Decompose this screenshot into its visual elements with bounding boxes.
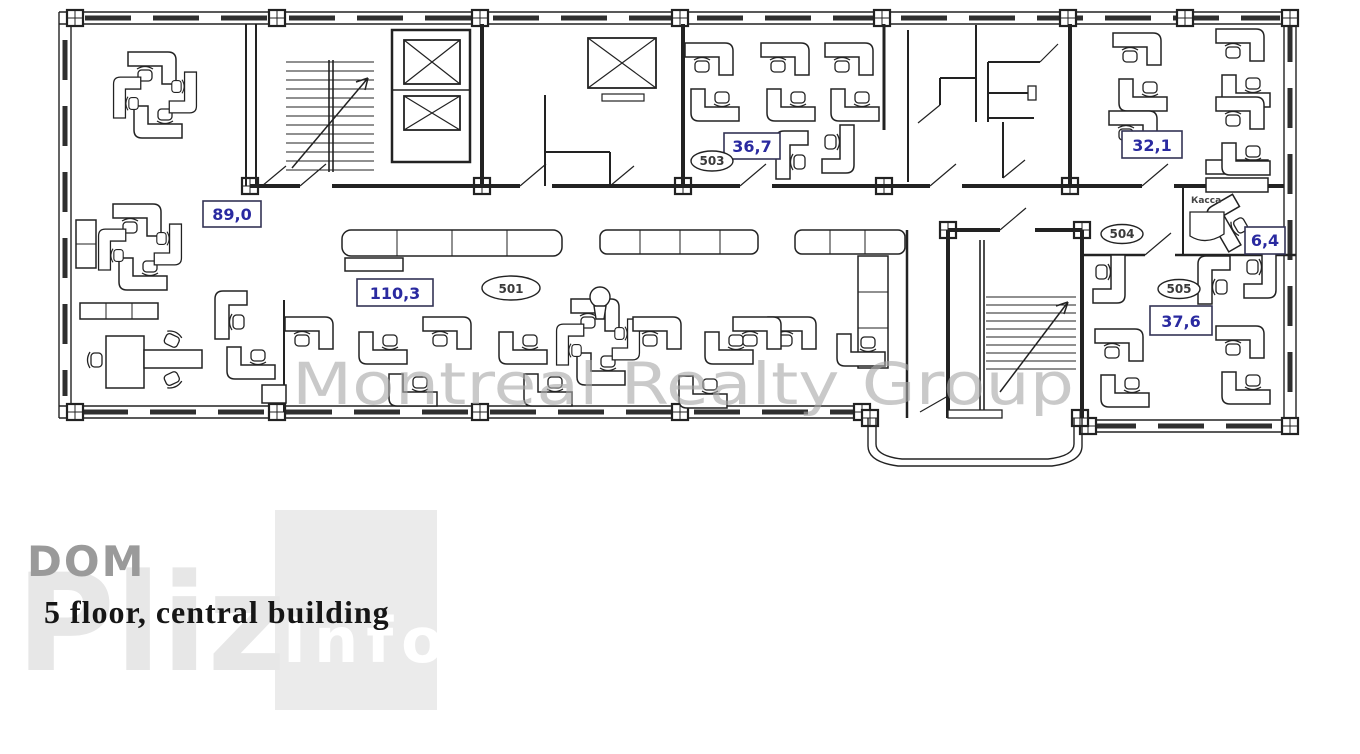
room-oval-501: 501	[482, 276, 540, 300]
area-value: 89,0	[212, 205, 251, 224]
area-value: 37,6	[1161, 312, 1200, 331]
watermark-dom: DOM	[27, 541, 145, 583]
room-number: 503	[699, 154, 724, 168]
area-value: 32,1	[1132, 136, 1171, 155]
stairs-left	[286, 60, 374, 172]
room-number: 501	[498, 282, 523, 296]
area-label-89-0: 89,0	[203, 201, 261, 227]
area-label-32-1: 32,1	[1122, 131, 1182, 158]
room-oval-503: 503	[691, 151, 733, 171]
area-label-110-3: 110,3	[357, 279, 433, 306]
area-value: 36,7	[732, 137, 771, 156]
meeting-table	[88, 329, 203, 390]
kassa-annotation: Касса	[1191, 196, 1221, 206]
kassa-booth	[1190, 212, 1224, 241]
room-oval-504: 504	[1101, 225, 1143, 244]
bay-window	[868, 410, 1082, 466]
area-label-37-6: 37,6	[1150, 306, 1212, 335]
room-number: 505	[1166, 282, 1191, 296]
room-number: 504	[1109, 227, 1134, 241]
area-label-6-4: 6,4	[1245, 227, 1285, 254]
floor-caption: 5 floor, central building	[44, 596, 390, 628]
area-value: 110,3	[370, 284, 421, 303]
room-oval-505: 505	[1158, 280, 1200, 299]
elevator-shafts	[392, 30, 470, 162]
watermark-realty-group: Montreal Realty Group	[292, 350, 1074, 418]
vent-shaft	[588, 38, 656, 101]
area-label-36-7: 36,7	[724, 133, 780, 159]
area-value: 6,4	[1251, 231, 1279, 250]
